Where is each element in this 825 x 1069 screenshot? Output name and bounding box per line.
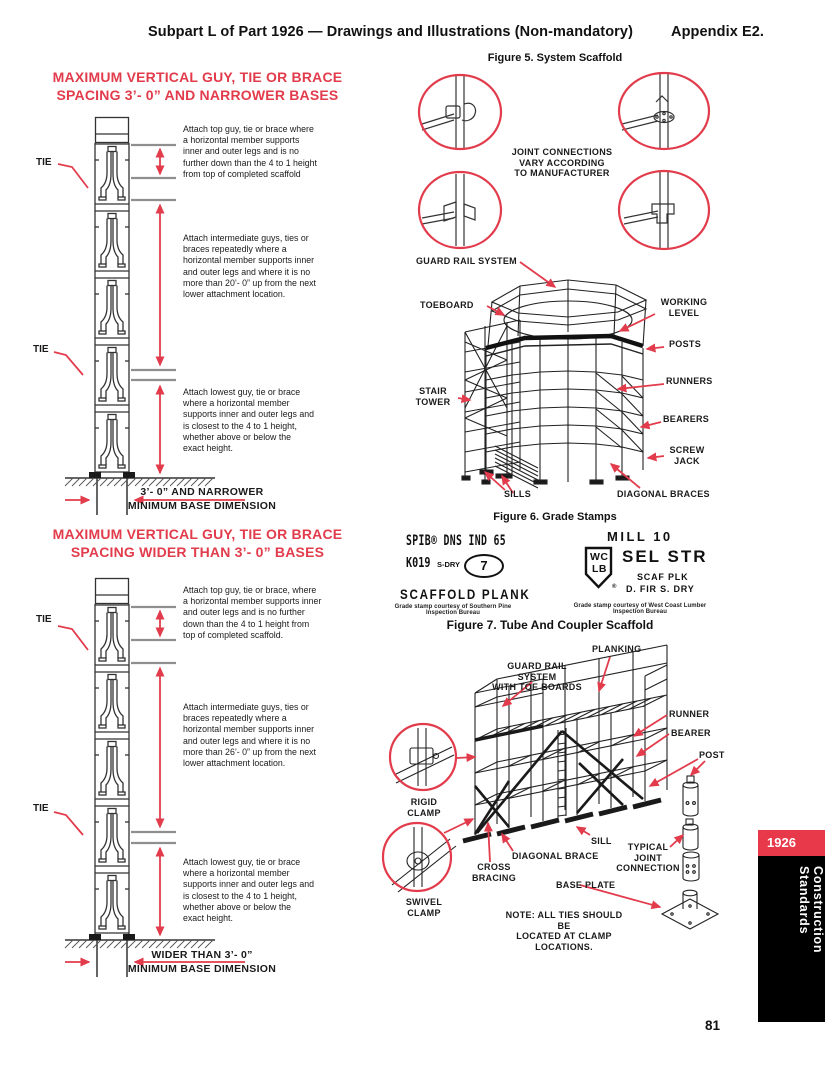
- grade-stamp-wclb-mill: MILL 10: [607, 529, 673, 544]
- wide-note-mid: Attach intermediate guys, ties or braces…: [183, 702, 349, 769]
- fig7-sill-label: SILL: [591, 836, 612, 847]
- fig5-posts-label: POSTS: [669, 339, 701, 350]
- document-page: Subpart L of Part 1926 — Drawings and Il…: [0, 0, 825, 1069]
- sidebar-tab-1926: 1926: [758, 830, 825, 856]
- narrow-base-dimension-line1: 3’- 0” AND NARROWER: [122, 486, 282, 498]
- grade-stamp-spib-credit: Grade stamp courtesy of Southern Pine In…: [382, 604, 524, 616]
- sidebar-tab-label: Construction Standards: [797, 866, 825, 1022]
- grade-stamp-wclb-grade: SEL STR: [622, 547, 707, 567]
- fig5-runners-label: RUNNERS: [666, 376, 713, 387]
- fig7-runner-label: RUNNER: [669, 709, 709, 720]
- page-number: 81: [705, 1018, 720, 1033]
- grade-stamp-spib-dry: S-DRY: [437, 560, 460, 569]
- fig7-planking-label: PLANKING: [592, 644, 641, 655]
- tie-label: TIE: [33, 803, 49, 814]
- grade-stamp-wclb-spec1: SCAF PLK: [637, 572, 688, 582]
- fig5-bearers-label: BEARERS: [663, 414, 709, 425]
- fig7-base-plate-label: BASE PLATE: [556, 880, 615, 891]
- figure5-caption: Figure 5. System Scaffold: [455, 52, 655, 64]
- grade-stamp-spib-product: SCAFFOLD PLANK: [400, 587, 531, 602]
- wide-base-dimension-line2: MINIMUM BASE DIMENSION: [122, 963, 282, 975]
- fig7-typical-joint-label: TYPICAL JOINT CONNECTION: [616, 842, 680, 874]
- figure6-caption: Figure 6. Grade Stamps: [455, 511, 655, 523]
- grade-stamp-spib-badge: 7: [464, 554, 504, 578]
- tie-label: TIE: [36, 157, 52, 168]
- fig5-guard-rail-label: GUARD RAIL SYSTEM: [416, 256, 517, 267]
- sidebar-tab-construction-standards: Construction Standards: [758, 856, 825, 1022]
- tie-label: TIE: [36, 614, 52, 625]
- grade-stamp-wclb-spec2: D. FIR S. DRY: [626, 584, 695, 594]
- fig7-post-label: POST: [699, 750, 725, 761]
- diagram-narrow-title: MAXIMUM VERTICAL GUY, TIE OR BRACE SPACI…: [25, 69, 370, 104]
- tie-label: TIE: [33, 344, 49, 355]
- narrow-base-dimension-line2: MINIMUM BASE DIMENSION: [122, 500, 282, 512]
- figure7-caption: Figure 7. Tube And Coupler Scaffold: [440, 618, 660, 632]
- fig5-sills-label: SILLS: [504, 489, 531, 500]
- joint-connections-note: JOINT CONNECTIONS VARY ACCORDING TO MANU…: [498, 147, 626, 179]
- fig7-diagonal-brace-label: DIAGONAL BRACE: [512, 851, 599, 862]
- grade-stamp-spib-code: K019: [406, 556, 430, 571]
- wclb-shield-top: WC: [590, 551, 609, 563]
- system-scaffold-svg: [400, 248, 825, 520]
- fig5-diagonal-braces-label: DIAGONAL BRACES: [617, 489, 710, 500]
- wclb-registered-mark: ®: [612, 584, 616, 590]
- fig5-toeboard-label: TOEBOARD: [420, 300, 474, 311]
- narrow-note-bottom: Attach lowest guy, tie or brace where a …: [183, 387, 345, 454]
- narrow-note-top: Attach top guy, tie or brace where a hor…: [183, 124, 345, 180]
- fig5-working-level-label: WORKING LEVEL: [650, 297, 718, 318]
- fig7-note: NOTE: ALL TIES SHOULD BE LOCATED AT CLAM…: [498, 910, 630, 952]
- fig5-stair-tower-label: STAIR TOWER: [405, 386, 461, 407]
- fig7-rigid-clamp-label: RIGID CLAMP: [398, 797, 450, 818]
- sidebar-tab-year: 1926: [767, 835, 796, 850]
- wclb-shield-bottom: LB: [592, 563, 607, 575]
- narrow-note-mid: Attach intermediate guys, ties or braces…: [183, 233, 349, 300]
- appendix-label: Appendix E2.: [671, 24, 764, 40]
- wide-note-bottom: Attach lowest guy, tie or brace where a …: [183, 857, 345, 924]
- fig7-cross-bracing-label: CROSS BRACING: [466, 862, 522, 883]
- diagram-wide-title: MAXIMUM VERTICAL GUY, TIE OR BRACE SPACI…: [25, 526, 370, 561]
- fig7-guard-rail-label: GUARD RAIL SYSTEM WITH TOE BOARDS: [490, 661, 584, 693]
- grade-stamp-spib-line1: SPIB® DNS IND 65: [406, 533, 506, 549]
- wide-base-dimension-line1: WIDER THAN 3’- 0”: [122, 949, 282, 961]
- page-title: Subpart L of Part 1926 — Drawings and Il…: [148, 24, 633, 40]
- fig5-screw-jack-label: SCREW JACK: [655, 445, 719, 466]
- fig7-swivel-clamp-label: SWIVEL CLAMP: [397, 897, 451, 918]
- fig7-bearer-label: BEARER: [671, 728, 711, 739]
- grade-stamp-wclb-credit: Grade stamp courtesy of West Coast Lumbe…: [558, 603, 722, 615]
- wide-note-top: Attach top guy, tie or brace, where a ho…: [183, 585, 349, 641]
